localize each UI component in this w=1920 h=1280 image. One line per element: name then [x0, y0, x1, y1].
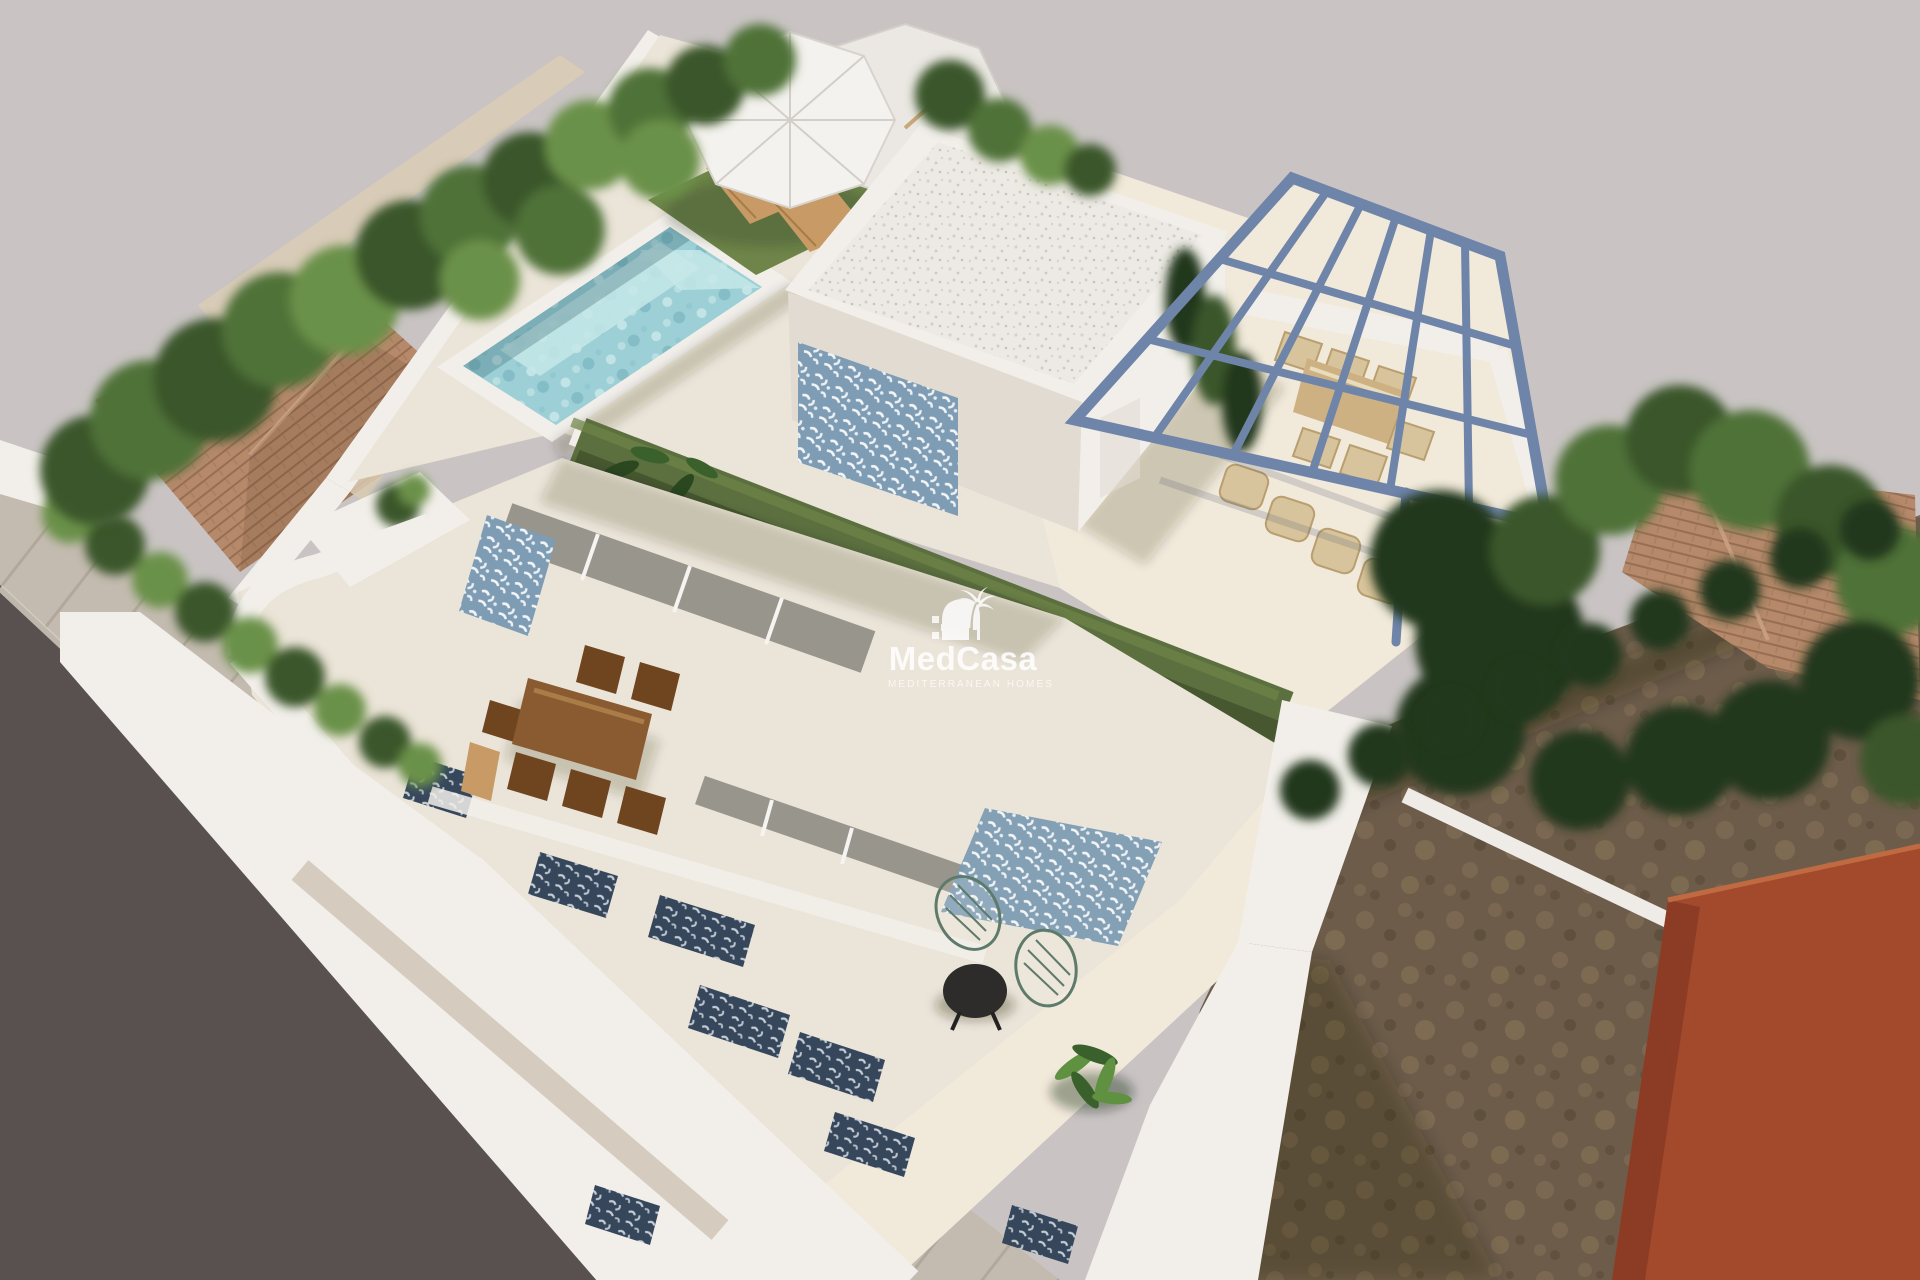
- render-canvas: MedCasa MEDITERRANEAN HOMES: [0, 0, 1920, 1280]
- brand-name: MedCasa: [888, 642, 1038, 675]
- palm-house-icon: [928, 586, 998, 640]
- brand-tagline: MEDITERRANEAN HOMES: [888, 679, 1038, 690]
- round-coffee-table: [943, 964, 1007, 1018]
- watermark-logo: MedCasa MEDITERRANEAN HOMES: [888, 586, 1038, 690]
